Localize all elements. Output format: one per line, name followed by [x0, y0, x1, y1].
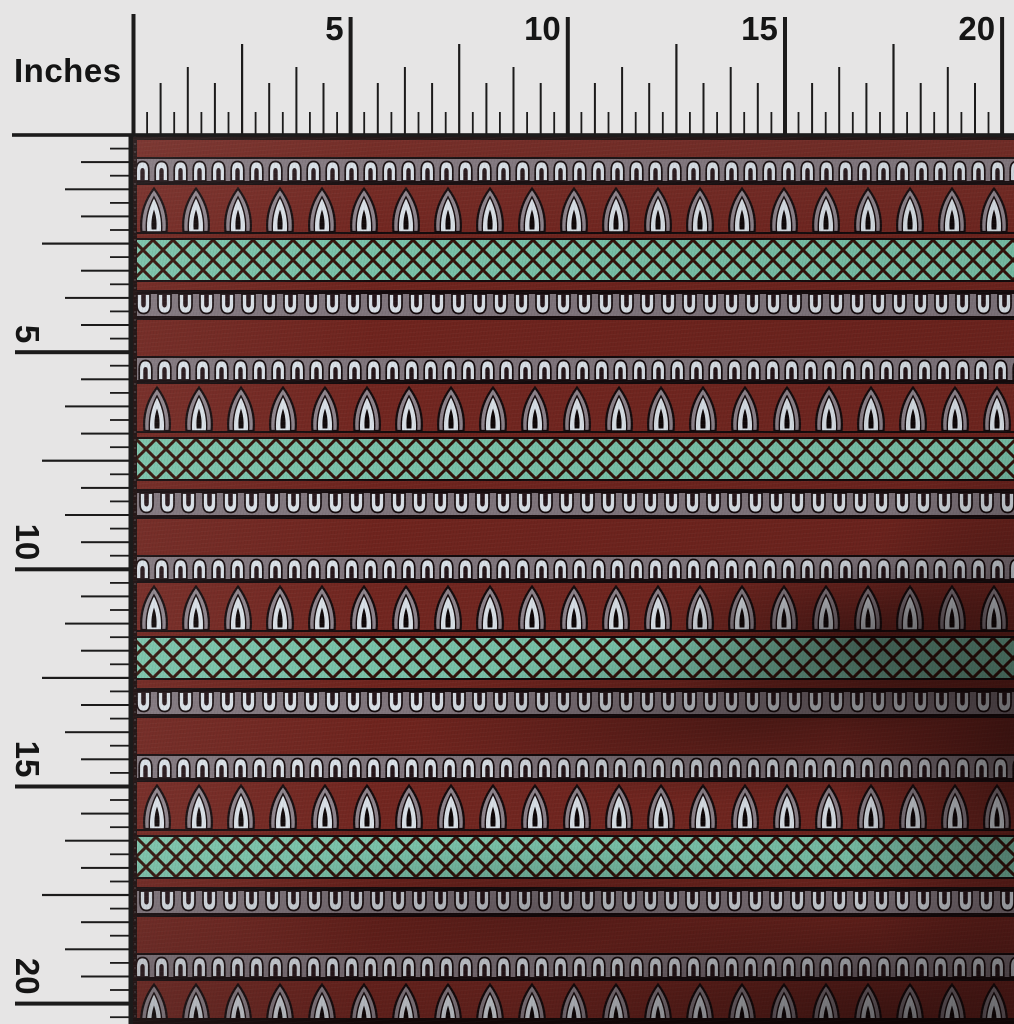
maroon-strip — [133, 481, 1014, 489]
top-ruler-tick — [892, 44, 894, 135]
top-ruler-tick — [241, 44, 243, 135]
plain-maroon — [133, 519, 1014, 555]
arch-row — [133, 555, 1014, 581]
plain-maroon — [133, 917, 1014, 953]
top-ruler-number-20: 20 — [958, 10, 995, 47]
pattern-repeat-2 — [133, 356, 1014, 555]
plain-maroon — [133, 320, 1014, 356]
left-ruler-tick — [110, 283, 129, 285]
separator — [133, 716, 1014, 718]
left-ruler-tick — [65, 514, 129, 516]
left-ruler-tick — [65, 731, 129, 733]
top-ruler-tick — [336, 112, 338, 135]
left-ruler-tick — [81, 650, 129, 652]
trellis-row — [133, 837, 1014, 877]
left-ruler-tick — [81, 487, 129, 489]
teardrop-row — [133, 583, 1014, 630]
left-ruler-tick — [110, 853, 129, 855]
left-ruler-tick — [81, 541, 129, 543]
top-ruler-tick — [594, 83, 596, 135]
u-arch-row — [133, 292, 1014, 318]
maroon-strip — [133, 831, 1014, 835]
left-ruler-tick — [110, 501, 129, 503]
left-ruler-tick — [65, 405, 129, 407]
left-ruler-tick — [81, 215, 129, 217]
top-ruler-tick — [377, 83, 379, 135]
separator — [133, 382, 1014, 384]
left-ruler: 5101520 — [0, 135, 133, 1024]
fabric-bottom-edge — [133, 1018, 1014, 1024]
left-ruler-tick — [15, 567, 129, 571]
arch-row — [133, 157, 1014, 183]
top-ruler-tick — [1000, 17, 1004, 135]
left-ruler-tick — [110, 175, 129, 177]
left-ruler-tick — [42, 894, 129, 896]
maroon-strip — [133, 680, 1014, 688]
top-ruler-tick — [404, 67, 406, 135]
ruler-origin-line — [132, 14, 136, 135]
top-ruler-tick — [472, 112, 474, 135]
trellis-row — [133, 240, 1014, 280]
left-ruler-tick — [110, 772, 129, 774]
top-ruler-tick — [906, 112, 908, 135]
fabric-pattern — [133, 135, 1014, 1024]
left-ruler-tick — [42, 243, 129, 245]
pattern-repeat-3 — [133, 555, 1014, 754]
left-ruler-tick — [110, 881, 129, 883]
top-ruler-tick — [431, 83, 433, 135]
left-ruler-tick — [110, 528, 129, 530]
top-ruler-tick — [201, 112, 203, 135]
left-ruler-tick — [110, 609, 129, 611]
fabric-swatch — [133, 135, 1014, 1024]
left-ruler-tick — [110, 311, 129, 313]
top-ruler-tick — [879, 112, 881, 135]
arch-row — [133, 754, 1014, 780]
left-ruler-tick — [110, 582, 129, 584]
left-ruler-number-20: 20 — [9, 958, 46, 995]
left-ruler-tick — [110, 1016, 129, 1018]
top-ruler-tick — [730, 67, 732, 135]
separator — [133, 979, 1014, 981]
left-ruler-tick — [110, 365, 129, 367]
left-ruler-tick — [81, 867, 129, 869]
fabric-selvage-edge — [133, 135, 137, 1024]
left-ruler-tick — [110, 256, 129, 258]
top-ruler-tick — [675, 44, 677, 135]
left-ruler-tick — [110, 718, 129, 720]
inches-label: Inches — [14, 52, 122, 90]
top-ruler-tick — [635, 112, 637, 135]
separator — [133, 318, 1014, 320]
left-ruler-tick — [110, 229, 129, 231]
trellis-row — [133, 439, 1014, 479]
left-ruler-tick — [110, 419, 129, 421]
top-ruler-tick — [268, 83, 270, 135]
left-ruler-tick — [15, 1002, 129, 1006]
top-ruler-tick — [933, 112, 935, 135]
top-ruler-tick — [323, 83, 325, 135]
separator — [133, 431, 1014, 433]
left-ruler-tick — [65, 297, 129, 299]
left-ruler-tick — [110, 202, 129, 204]
top-ruler-tick — [445, 112, 447, 135]
left-ruler-tick — [42, 460, 129, 462]
left-ruler-tick — [110, 691, 129, 693]
pattern-repeat-1 — [133, 157, 1014, 356]
left-ruler-tick — [81, 976, 129, 978]
left-ruler-tick — [81, 270, 129, 272]
top-ruler-tick — [825, 112, 827, 135]
separator — [133, 280, 1014, 282]
top-ruler-tick — [187, 67, 189, 135]
left-ruler-tick — [110, 962, 129, 964]
left-ruler-tick — [81, 813, 129, 815]
top-ruler-tick — [255, 112, 257, 135]
left-ruler-tick — [110, 935, 129, 937]
left-ruler-tick — [15, 350, 129, 354]
top-ruler-tick — [648, 83, 650, 135]
u-arch-row — [133, 889, 1014, 915]
separator — [133, 489, 1014, 491]
u-arch-row — [133, 690, 1014, 716]
left-ruler-number-10: 10 — [9, 524, 46, 561]
top-ruler-tick — [974, 83, 976, 135]
left-ruler-tick — [81, 921, 129, 923]
left-ruler-tick — [81, 378, 129, 380]
left-ruler-tick — [110, 392, 129, 394]
top-ruler-tick — [173, 112, 175, 135]
fabric-top-edge — [133, 135, 1014, 140]
left-ruler-tick — [110, 908, 129, 910]
separator — [133, 915, 1014, 917]
top-ruler-tick — [689, 112, 691, 135]
teardrop-row — [133, 782, 1014, 829]
left-ruler-tick — [65, 623, 129, 625]
top-ruler-tick — [553, 112, 555, 135]
top-ruler-tick — [988, 112, 990, 135]
separator — [133, 630, 1014, 632]
top-ruler-tick — [160, 83, 162, 135]
separator — [133, 678, 1014, 680]
top-ruler-tick — [566, 17, 570, 135]
maroon-strip — [133, 433, 1014, 437]
top-ruler-number-10: 10 — [524, 10, 561, 47]
separator — [133, 517, 1014, 519]
left-ruler-tick — [110, 745, 129, 747]
top-ruler-tick — [608, 112, 610, 135]
left-ruler-tick — [42, 677, 129, 679]
separator — [133, 232, 1014, 234]
top-ruler-tick — [743, 112, 745, 135]
left-ruler-tick — [81, 433, 129, 435]
top-ruler-number-15: 15 — [741, 10, 778, 47]
teardrop-row — [133, 981, 1014, 1024]
top-ruler-tick — [526, 112, 528, 135]
left-ruler-number-15: 15 — [9, 741, 46, 778]
top-ruler-tick — [418, 112, 420, 135]
left-ruler-tick — [81, 161, 129, 163]
left-ruler-tick — [81, 704, 129, 706]
separator — [133, 238, 1014, 240]
arch-row — [133, 356, 1014, 382]
left-ruler-tick — [110, 663, 129, 665]
left-ruler-tick — [81, 595, 129, 597]
top-ruler-tick — [146, 112, 148, 135]
separator — [133, 887, 1014, 889]
trellis-row — [133, 638, 1014, 678]
top-ruler-tick — [391, 112, 393, 135]
top-ruler-tick — [363, 112, 365, 135]
separator — [133, 290, 1014, 292]
teardrop-row — [133, 185, 1014, 232]
separator — [133, 581, 1014, 583]
left-ruler-tick — [65, 840, 129, 842]
arch-row — [133, 953, 1014, 979]
top-ruler-tick — [852, 112, 854, 135]
left-ruler-tick — [110, 555, 129, 557]
top-ruler-number-5: 5 — [325, 10, 343, 47]
top-ruler-tick — [783, 17, 787, 135]
top-ruler-tick — [540, 83, 542, 135]
separator — [133, 183, 1014, 185]
left-ruler-tick — [15, 785, 129, 789]
top-ruler-tick — [865, 83, 867, 135]
left-ruler-tick — [110, 338, 129, 340]
left-ruler-tick — [110, 799, 129, 801]
separator — [133, 835, 1014, 837]
top-ruler-tick — [499, 112, 501, 135]
teardrop-row — [133, 384, 1014, 431]
top-ruler-tick — [513, 67, 515, 135]
separator — [133, 437, 1014, 439]
u-arch-row — [133, 491, 1014, 517]
separator — [133, 877, 1014, 879]
separator — [133, 829, 1014, 831]
top-ruler-tick — [757, 83, 759, 135]
left-ruler-tick — [110, 473, 129, 475]
top-ruler-tick — [920, 83, 922, 135]
left-ruler-tick — [110, 148, 129, 150]
top-ruler-tick — [282, 112, 284, 135]
top-ruler-tick — [771, 112, 773, 135]
left-ruler-tick — [65, 188, 129, 190]
top-ruler-tick — [621, 67, 623, 135]
left-ruler-tick — [110, 826, 129, 828]
left-ruler-tick — [110, 636, 129, 638]
separator — [133, 636, 1014, 638]
left-ruler-tick — [81, 758, 129, 760]
left-ruler-tick — [65, 948, 129, 950]
separator — [133, 780, 1014, 782]
top-ruler-tick — [662, 112, 664, 135]
fabric-measurement-photo: 5101520 5101520 Inches — [0, 0, 1014, 1024]
top-ruler-tick — [214, 83, 216, 135]
plain-maroon — [133, 718, 1014, 754]
top-ruler-tick — [581, 112, 583, 135]
separator — [133, 688, 1014, 690]
top-ruler-tick — [811, 83, 813, 135]
top-ruler-tick — [485, 83, 487, 135]
top-ruler-tick — [838, 67, 840, 135]
top-ruler-tick — [458, 44, 460, 135]
left-ruler-tick — [81, 324, 129, 326]
top-ruler-tick — [703, 83, 705, 135]
top-ruler-tick — [716, 112, 718, 135]
top-ruler: 5101520 — [0, 0, 1014, 140]
top-ruler-tick — [228, 112, 230, 135]
top-ruler-tick — [295, 67, 297, 135]
separator — [133, 479, 1014, 481]
pattern-repeat-4 — [133, 754, 1014, 953]
left-ruler-number-5: 5 — [9, 325, 46, 343]
top-ruler-tick — [947, 67, 949, 135]
pattern-repeat-5 — [133, 953, 1014, 1024]
maroon-strip — [133, 632, 1014, 636]
left-ruler-tick — [110, 446, 129, 448]
left-ruler-tick — [110, 989, 129, 991]
top-ruler-tick — [349, 17, 353, 135]
top-ruler-tick — [309, 112, 311, 135]
maroon-strip — [133, 234, 1014, 238]
top-ruler-tick — [798, 112, 800, 135]
maroon-strip — [133, 282, 1014, 290]
maroon-strip — [133, 879, 1014, 887]
top-ruler-tick — [961, 112, 963, 135]
